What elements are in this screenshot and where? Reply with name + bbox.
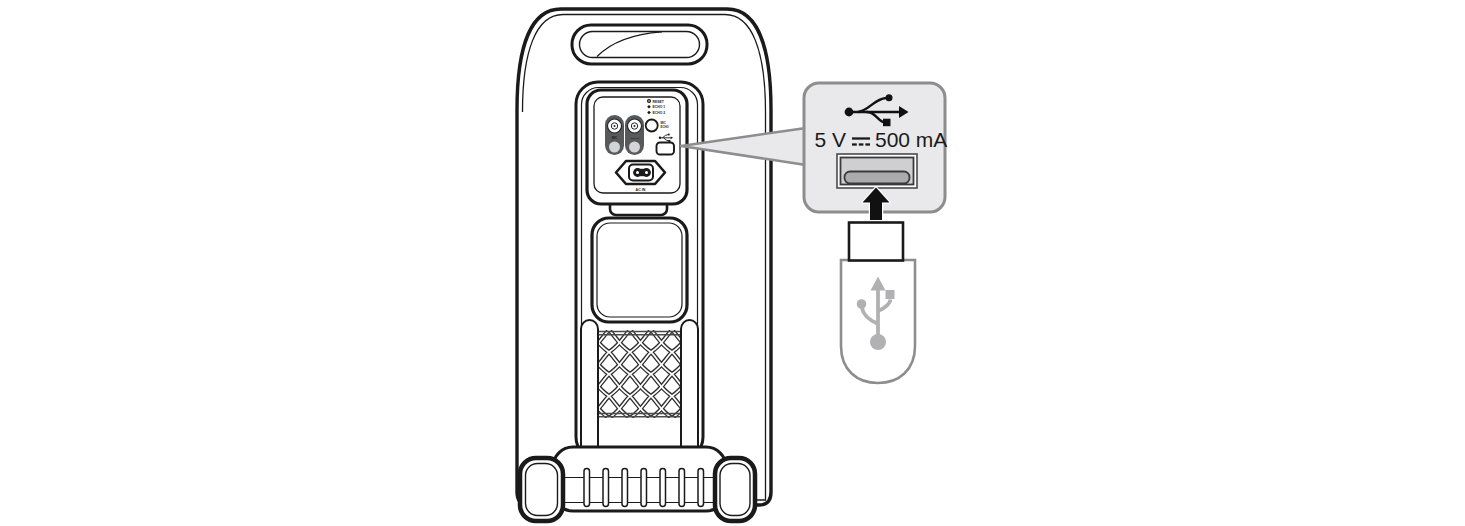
power-rating: 5 V 500 mA: [814, 128, 947, 151]
top-handle: [572, 25, 707, 64]
callout-box: 5 V 500 mA: [804, 83, 947, 220]
rating-current: 500 mA: [875, 128, 947, 151]
mesh-rail-left: [581, 320, 598, 458]
usb-icon-square-tip: [883, 119, 891, 127]
usb-icon-dot: [845, 108, 854, 117]
compartment-door: [592, 218, 687, 322]
left-wheel: [520, 458, 563, 521]
mic-jack: MIC: [605, 115, 624, 155]
usb-socket: [837, 154, 917, 188]
echo2-label: ECHO 2: [653, 111, 666, 115]
panel-indicators: RESET ECHO 1 ECHO 2: [647, 99, 665, 115]
usb-drive-connector: [849, 223, 903, 261]
speaker-body: MIC GUITAR RESET ECHO 1 ECHO 2: [517, 9, 771, 521]
right-wheel: [715, 458, 755, 521]
mic-jack-label: MIC: [612, 136, 618, 140]
guitar-jack: GUITAR: [625, 115, 644, 155]
guitar-jack-label: GUITAR: [630, 137, 639, 140]
speaker-usb-diagram: MIC GUITAR RESET ECHO 1 ECHO 2: [0, 0, 1465, 526]
usb-icon-circle-tip: [886, 94, 893, 101]
bottom-bumper: [553, 447, 726, 511]
mesh-rail-right: [681, 320, 698, 458]
knob-label-line2: ECHO: [661, 125, 670, 129]
rear-panel: MIC GUITAR RESET ECHO 1 ECHO 2: [587, 90, 687, 204]
rating-voltage: 5 V: [814, 128, 846, 151]
reset-icon-center: [648, 100, 650, 102]
echo1-label: ECHO 1: [653, 105, 666, 109]
usb-socket-tongue: [845, 172, 910, 184]
reset-label: RESET: [653, 100, 665, 104]
ac-in-label: AC IN: [636, 188, 646, 192]
illustration-canvas: MIC GUITAR RESET ECHO 1 ECHO 2: [0, 0, 1465, 526]
mesh-net: [598, 330, 681, 418]
usb-drive: [841, 223, 915, 384]
